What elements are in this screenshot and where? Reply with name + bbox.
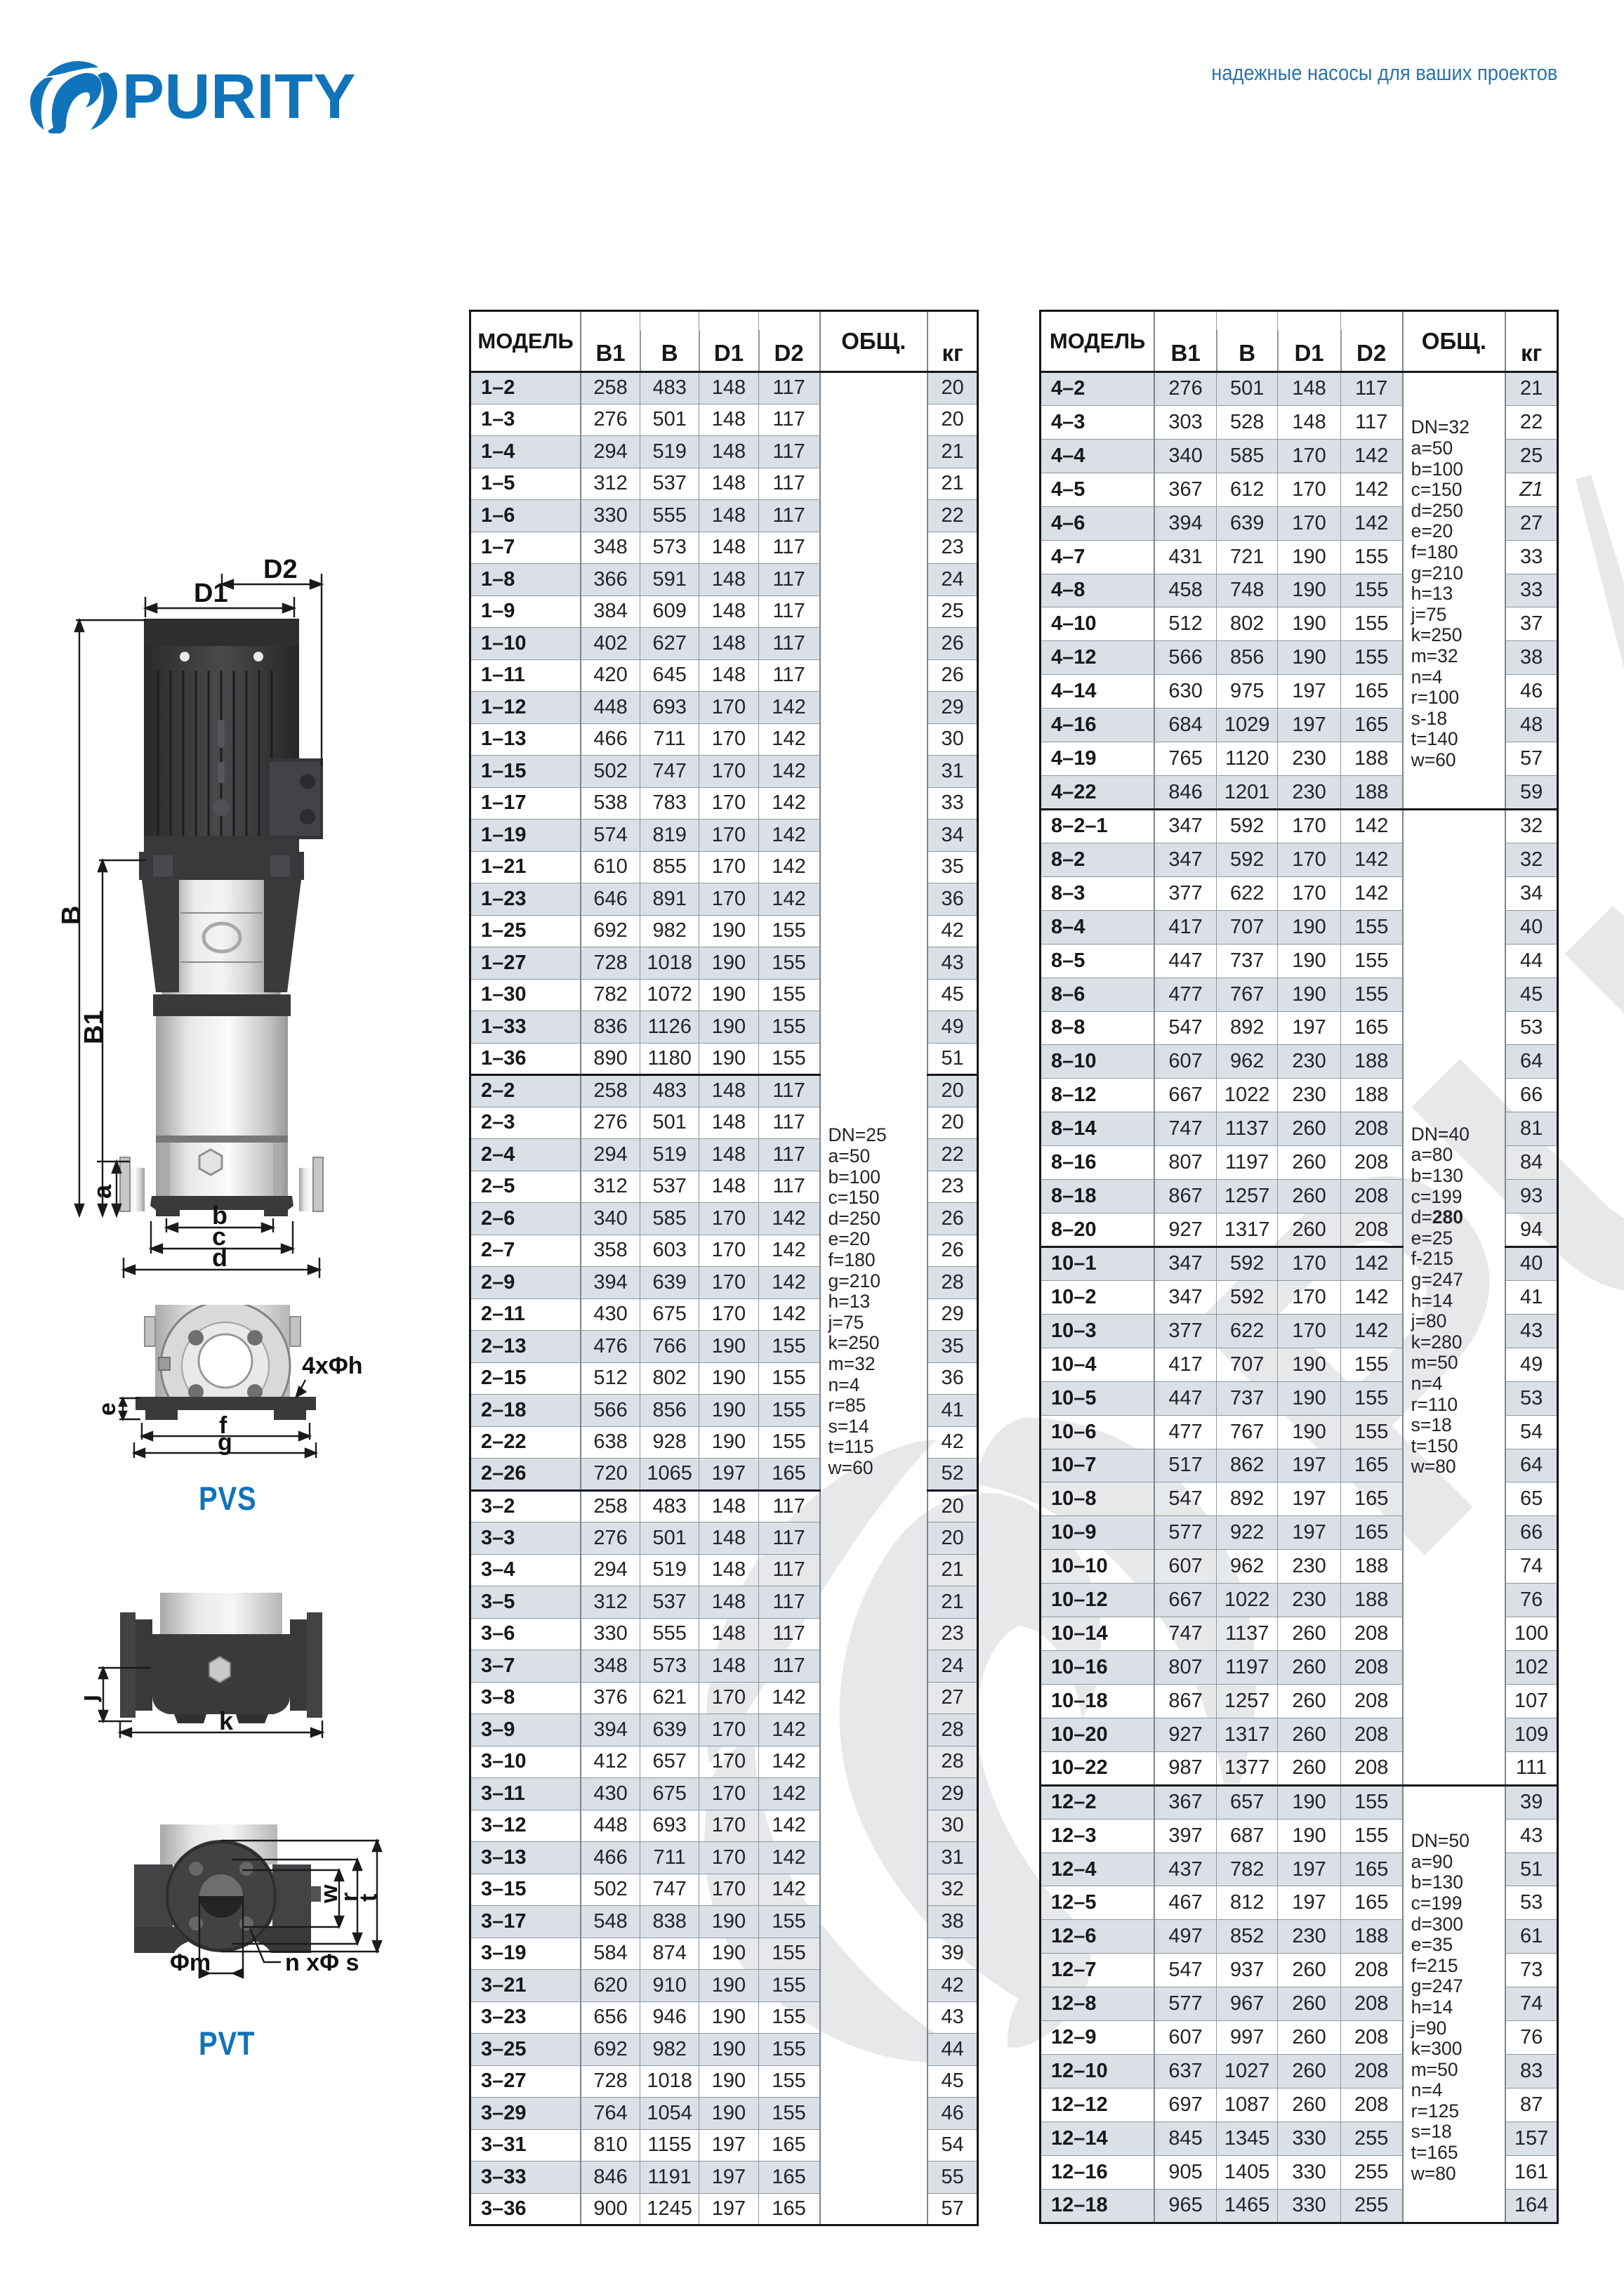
svg-text:4xΦh: 4xΦh — [302, 1353, 363, 1379]
svg-text:g: g — [218, 1429, 232, 1456]
svg-text:B1: B1 — [79, 1010, 109, 1044]
svg-text:D2: D2 — [263, 558, 298, 584]
svg-text:t: t — [355, 1894, 382, 1902]
svg-text:k: k — [219, 1706, 234, 1735]
svg-text:B: B — [57, 906, 86, 925]
svg-text:n xΦ s: n xΦ s — [285, 1949, 359, 1976]
svg-text:d: d — [212, 1243, 227, 1272]
svg-text:a: a — [88, 1184, 117, 1199]
svg-text:e: e — [98, 1402, 121, 1416]
svg-text:j: j — [84, 1695, 102, 1702]
